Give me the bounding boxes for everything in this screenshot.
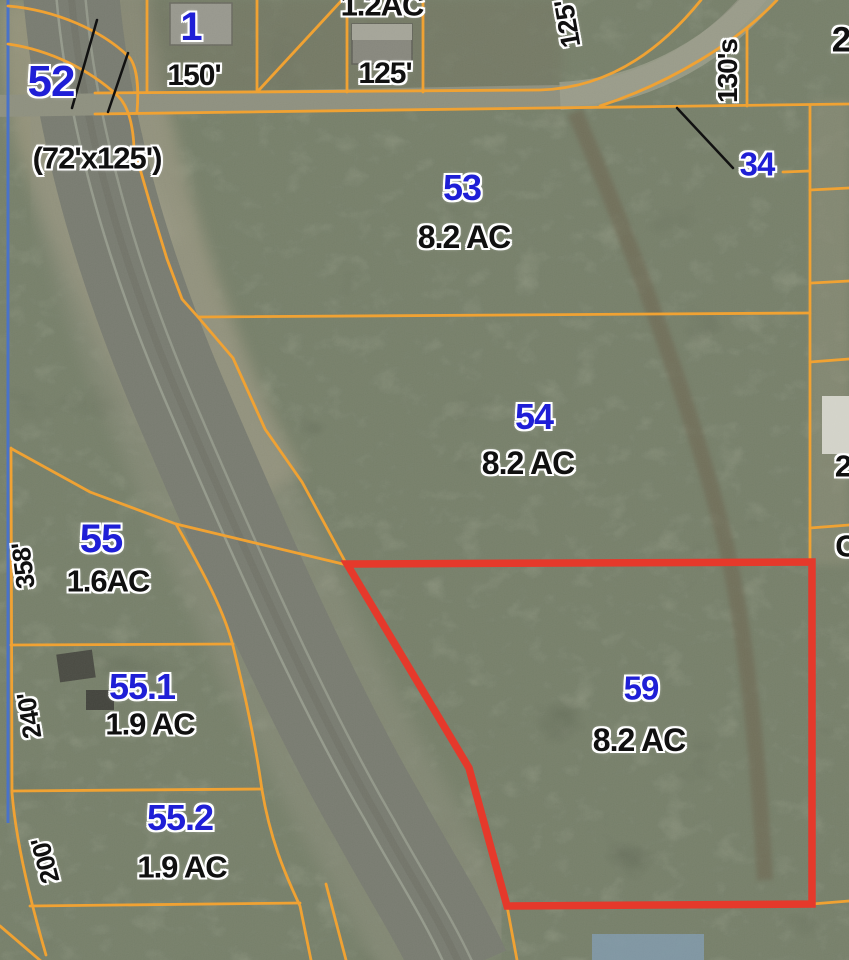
dim-125-label: 125' [358,59,411,89]
acreage-55-1-label: 1.9 AC [105,709,194,740]
acreage-54-label: 8.2 AC [482,447,574,479]
parcel-34-label: 34 [740,148,775,181]
parcel-55-label: 55 [80,519,123,559]
parcel-map: 52 (72'x125') 1 150' 1.2AC 125' 125' 130… [0,0,849,960]
edge-2-right-label: 2 [835,451,849,482]
parcel-55-2-label: 55.2 [147,800,213,836]
parcel-59-label: 59 [624,672,659,705]
parcel-53-label: 53 [443,170,481,206]
parcel-55-1-label: 55.1 [109,669,175,705]
dim-358-label: 358' [7,542,38,590]
dim-150-label: 150' [167,61,220,91]
acreage-1-2-label: 1.2AC [341,0,424,21]
edge-2-top-label: 2 [832,23,849,58]
parcel-1-label: 1 [180,7,201,47]
dim-130s-label: 130's [714,39,742,103]
acreage-59-label: 8.2 AC [593,724,685,756]
note-72x125-label: (72'x125') [33,143,162,174]
parcel-54-label: 54 [515,399,553,435]
dim-240-label: 240' [13,691,46,740]
acreage-55-label: 1.6AC [67,566,150,597]
parcel-52-label: 52 [28,60,75,104]
edge-c-right-label: C [835,531,849,562]
acreage-53-label: 8.2 AC [418,221,510,253]
acreage-55-2-label: 1.9 AC [137,852,226,883]
